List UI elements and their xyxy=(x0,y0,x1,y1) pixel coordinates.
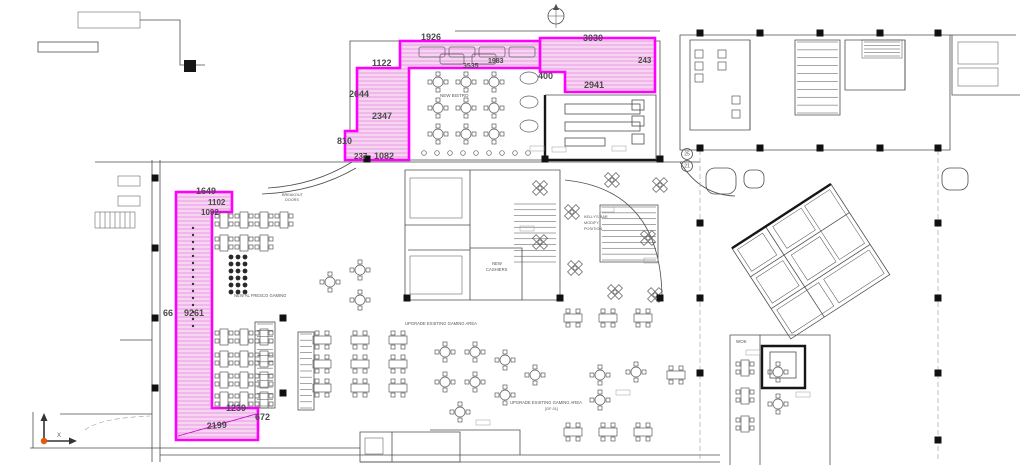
room-label: MODIFY xyxy=(584,221,599,225)
dimension-label: 3535 xyxy=(463,63,479,70)
dimension-label: 1122 xyxy=(372,58,392,68)
dimension-label: 672 xyxy=(255,412,270,422)
column-marker xyxy=(697,145,704,152)
dimension-label: 2199 xyxy=(206,420,227,431)
column-marker xyxy=(757,30,764,37)
dimension-label: 1092 xyxy=(201,208,219,217)
room-label: NEW AL FRESCO GAMING xyxy=(234,293,286,298)
column-marker xyxy=(542,156,549,163)
column-marker xyxy=(935,30,942,37)
room-label: X xyxy=(57,433,61,439)
column-marker xyxy=(152,315,159,322)
dimension-label: 400 xyxy=(538,71,553,81)
room-label: WOK xyxy=(736,339,747,344)
dimension-label: 1102 xyxy=(208,198,226,207)
column-marker xyxy=(697,220,704,227)
room-label: NEW BISTRO xyxy=(440,93,469,98)
column-marker xyxy=(935,220,942,227)
column-marker xyxy=(935,370,942,377)
column-marker xyxy=(935,295,942,302)
column-marker xyxy=(657,156,664,163)
room-label: NEW xyxy=(492,261,502,266)
dimension-label: 3030 xyxy=(583,33,603,43)
ucs-origin-dot xyxy=(41,438,47,444)
furniture-layer xyxy=(192,47,788,441)
dimension-label: 810 xyxy=(337,136,352,146)
dimension-label: 2644 xyxy=(349,89,369,99)
room-label: UPGRADE EXISTING GAMING AREA xyxy=(405,321,477,326)
column-marker xyxy=(152,175,159,182)
ucs-axis-icon xyxy=(41,413,78,445)
room-label: BREAKOUT xyxy=(282,193,304,197)
column-marker xyxy=(877,145,884,152)
column-marker xyxy=(404,295,411,302)
grid-bubble-label: 21 xyxy=(684,164,690,170)
column-marker xyxy=(280,390,287,397)
column-marker xyxy=(817,30,824,37)
dimension-label: 2941 xyxy=(584,80,604,90)
room-label: KELLY'S BAR xyxy=(584,215,608,219)
room-label: UPGRADE EXISTING GAMING AREA xyxy=(510,400,582,405)
column-marker xyxy=(557,295,564,302)
dimension-label: 243 xyxy=(638,56,652,65)
north-arrow-icon xyxy=(548,4,564,28)
dimension-label: 237 xyxy=(354,152,368,161)
dimension-label: 66 xyxy=(163,308,173,318)
column-marker xyxy=(280,315,287,322)
dimension-label: 1926 xyxy=(421,32,441,42)
dimension-label: 9261 xyxy=(184,308,204,318)
column-marker xyxy=(152,385,159,392)
grid-bubble-label: 25 xyxy=(684,152,690,158)
column-marker xyxy=(697,30,704,37)
column-marker xyxy=(935,437,942,444)
floor-plan-viewport: 2521192611222644234781023710823535198330… xyxy=(0,0,1024,472)
column-marker xyxy=(817,145,824,152)
column-marker xyxy=(697,295,704,302)
column-marker xyxy=(757,145,764,152)
column-marker xyxy=(935,145,942,152)
room-label: DOORS xyxy=(285,198,299,202)
dimension-label: 1239 xyxy=(226,403,246,413)
column-marker xyxy=(697,370,704,377)
room-label: POSITION xyxy=(584,227,602,231)
column-marker xyxy=(657,295,664,302)
column-marker xyxy=(152,245,159,252)
room-label: CASHIERS xyxy=(486,267,508,272)
drawing-canvas[interactable]: 2521192611222644234781023710823535198330… xyxy=(0,0,1024,472)
column-grid xyxy=(152,30,942,444)
room-label: [GF-01] xyxy=(545,407,558,411)
dimension-label: 2347 xyxy=(372,111,392,121)
dimension-label: 1082 xyxy=(374,151,394,161)
column-marker xyxy=(877,30,884,37)
dimension-label: 1983 xyxy=(488,58,504,65)
dimension-label: 1649 xyxy=(196,186,216,196)
